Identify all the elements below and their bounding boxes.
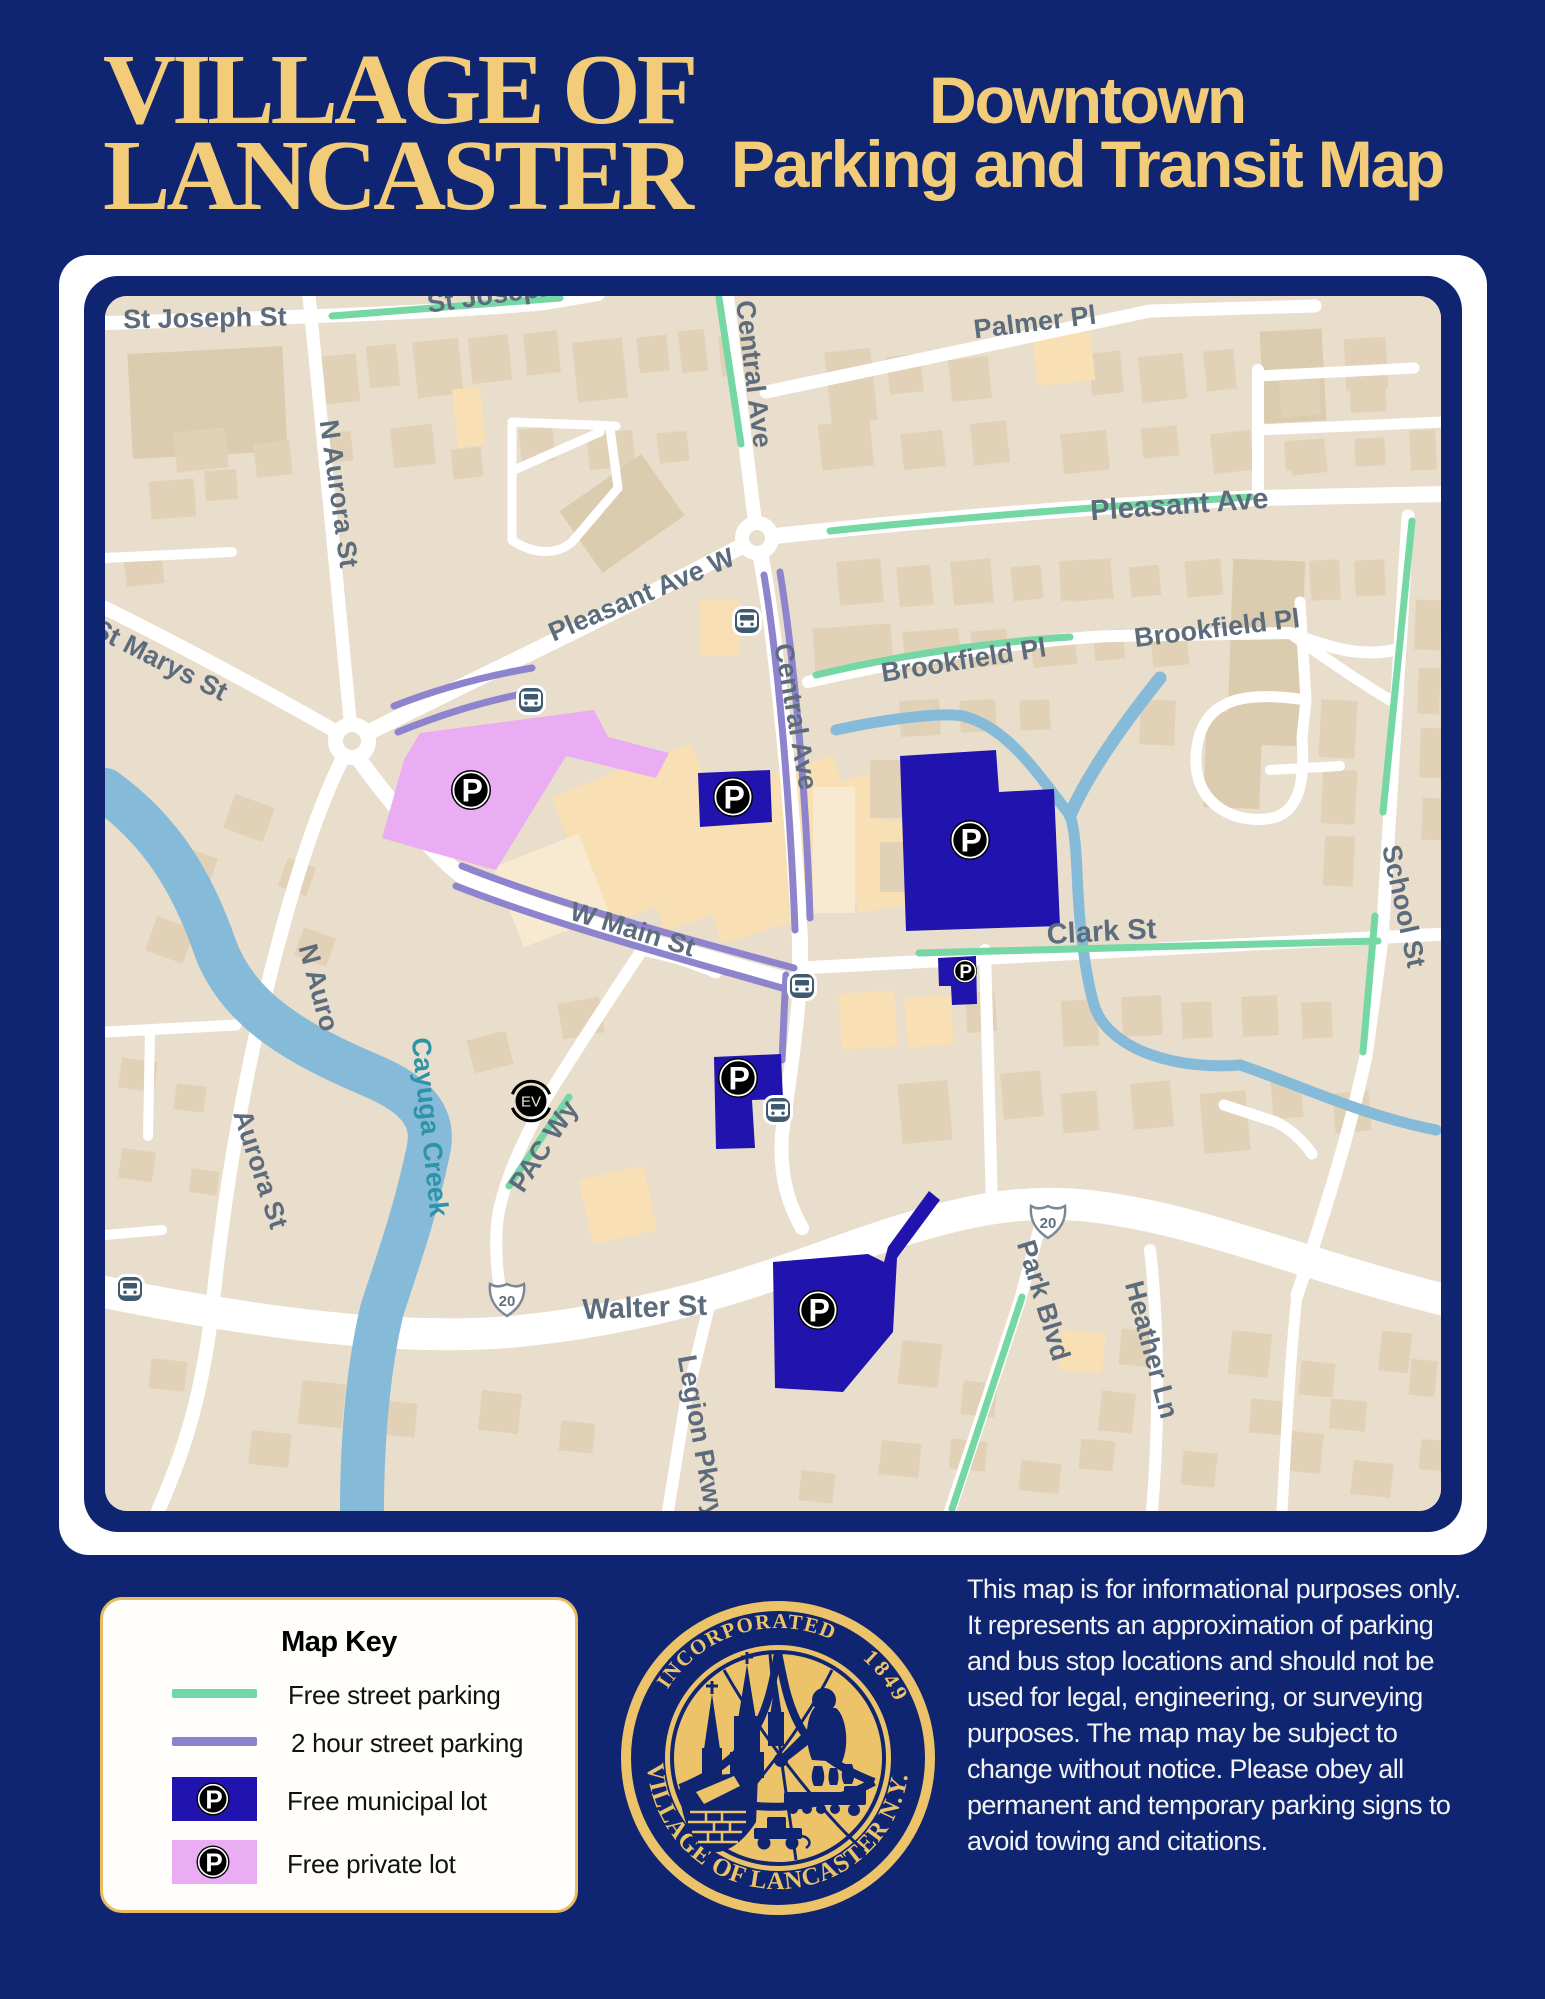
svg-text:Clark St: Clark St bbox=[1046, 913, 1157, 951]
svg-text:St Joseph St: St Joseph St bbox=[123, 302, 287, 335]
svg-text:Walter St: Walter St bbox=[582, 1290, 708, 1326]
svg-text:P: P bbox=[205, 1848, 222, 1878]
svg-text:P: P bbox=[462, 772, 483, 808]
svg-text:P: P bbox=[205, 1785, 222, 1815]
svg-text:P: P bbox=[724, 779, 745, 815]
svg-text:EV: EV bbox=[521, 1094, 541, 1111]
svg-text:P: P bbox=[961, 822, 982, 858]
svg-text:P: P bbox=[809, 1292, 830, 1328]
svg-text:P: P bbox=[959, 962, 972, 983]
svg-text:P: P bbox=[729, 1060, 750, 1096]
svg-text:20: 20 bbox=[1040, 1215, 1057, 1232]
svg-text:20: 20 bbox=[499, 1293, 516, 1310]
